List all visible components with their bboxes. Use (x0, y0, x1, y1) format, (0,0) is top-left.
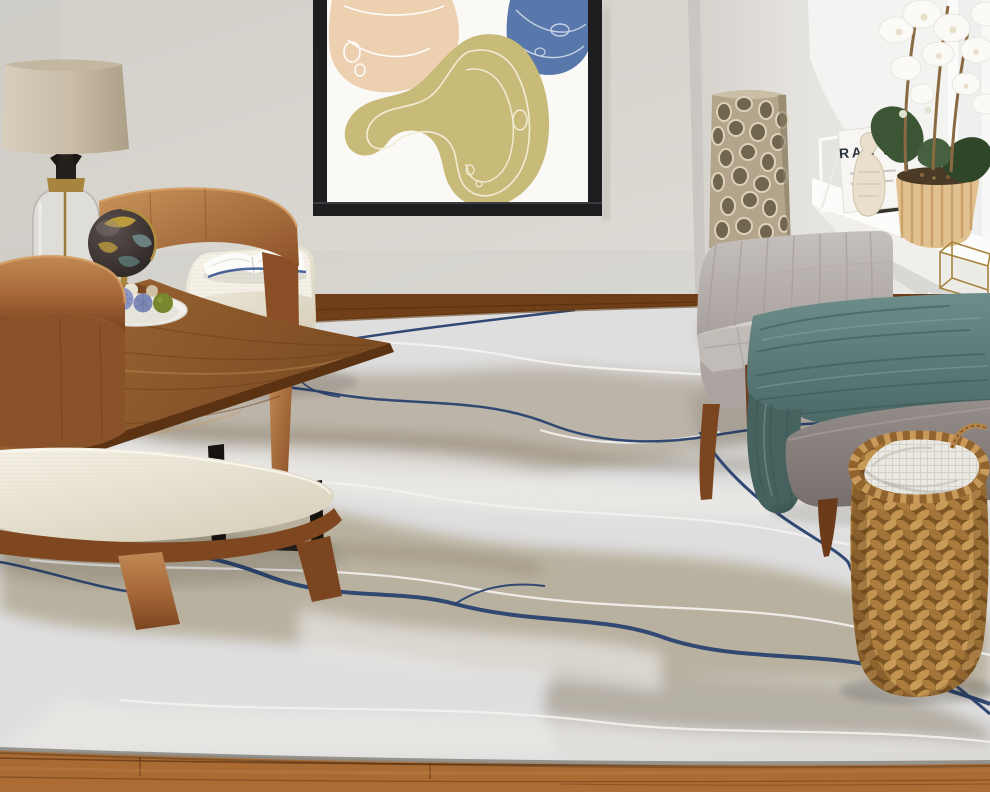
scene-canvas: RAN SY (0, 0, 990, 792)
chair-back-lower (0, 314, 125, 450)
lamp-shade (1, 60, 129, 155)
frame-shadow (602, 8, 610, 220)
floor-vase (709, 90, 791, 248)
lamp-brass-cap (47, 178, 85, 192)
wall-art (313, 0, 610, 220)
living-room-photo: RAN SY (0, 0, 990, 792)
woven-basket (840, 426, 990, 704)
moss-ball (153, 293, 173, 313)
